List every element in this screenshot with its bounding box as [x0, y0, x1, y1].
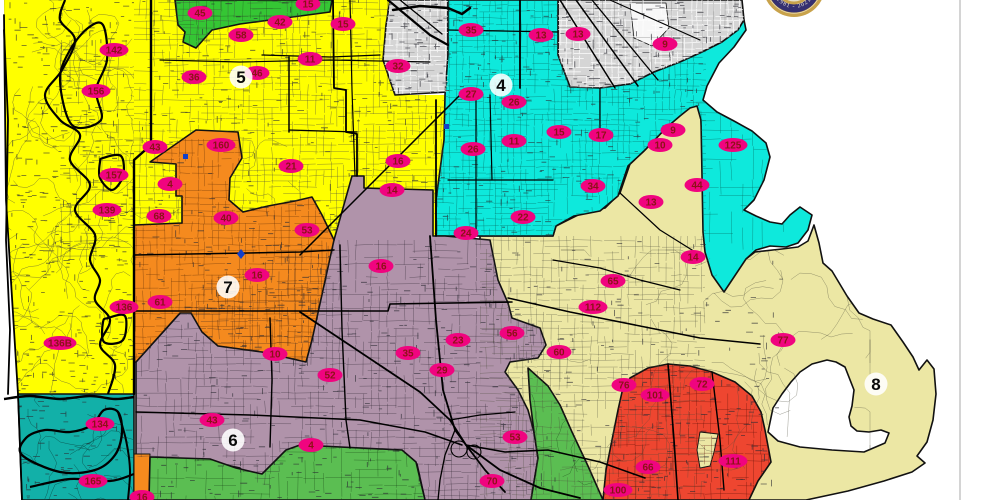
svg-text:6: 6	[228, 431, 237, 450]
svg-text:9: 9	[662, 39, 668, 50]
svg-text:42: 42	[274, 17, 286, 28]
svg-text:16: 16	[375, 261, 387, 272]
svg-text:53: 53	[301, 225, 313, 236]
svg-text:125: 125	[725, 140, 742, 151]
svg-text:16: 16	[251, 270, 263, 281]
svg-text:26: 26	[467, 144, 479, 155]
svg-text:16: 16	[136, 492, 148, 500]
svg-text:17: 17	[595, 130, 607, 141]
svg-text:13: 13	[535, 30, 547, 41]
svg-text:136B: 136B	[48, 338, 72, 349]
svg-text:136: 136	[116, 302, 133, 313]
svg-text:9: 9	[670, 125, 676, 136]
svg-text:29: 29	[436, 365, 448, 376]
svg-text:56: 56	[506, 328, 518, 339]
svg-text:34: 34	[587, 181, 599, 192]
svg-text:13: 13	[645, 197, 657, 208]
svg-text:4: 4	[167, 179, 173, 190]
svg-text:60: 60	[553, 347, 565, 358]
svg-text:68: 68	[153, 211, 165, 222]
svg-text:4: 4	[496, 76, 506, 95]
svg-text:21: 21	[285, 161, 297, 172]
svg-text:72: 72	[696, 379, 708, 390]
svg-text:52: 52	[324, 370, 336, 381]
svg-text:100: 100	[610, 485, 627, 496]
svg-text:27: 27	[465, 89, 477, 100]
svg-text:26: 26	[508, 97, 520, 108]
svg-text:11: 11	[305, 54, 316, 65]
svg-text:16: 16	[392, 156, 404, 167]
svg-text:156: 156	[88, 86, 105, 97]
svg-text:77: 77	[777, 335, 789, 346]
svg-text:14: 14	[687, 252, 699, 263]
svg-text:134: 134	[92, 419, 109, 430]
svg-text:165: 165	[85, 476, 102, 487]
svg-text:15: 15	[553, 127, 565, 138]
svg-text:24: 24	[460, 228, 472, 239]
svg-text:66: 66	[642, 462, 654, 473]
svg-text:15: 15	[337, 19, 349, 30]
svg-text:5: 5	[236, 68, 245, 87]
svg-text:101: 101	[647, 390, 664, 401]
svg-text:76: 76	[618, 380, 630, 391]
svg-text:157: 157	[106, 170, 123, 181]
svg-text:44: 44	[691, 180, 703, 191]
svg-text:22: 22	[517, 212, 529, 223]
svg-text:13: 13	[572, 29, 584, 40]
svg-text:35: 35	[465, 25, 477, 36]
svg-text:65: 65	[607, 276, 619, 287]
svg-text:43: 43	[206, 415, 218, 426]
svg-text:58: 58	[235, 30, 247, 41]
svg-text:46: 46	[251, 68, 263, 79]
svg-text:11: 11	[509, 136, 520, 147]
svg-text:35: 35	[402, 348, 414, 359]
svg-text:111: 111	[725, 456, 741, 467]
svg-text:36: 36	[188, 72, 200, 83]
svg-text:43: 43	[149, 142, 161, 153]
svg-text:4: 4	[308, 440, 314, 451]
svg-text:142: 142	[106, 45, 123, 56]
svg-text:61: 61	[154, 297, 166, 308]
svg-text:23: 23	[452, 335, 464, 346]
svg-text:32: 32	[392, 61, 404, 72]
svg-text:139: 139	[99, 205, 116, 216]
svg-text:15: 15	[302, 0, 314, 10]
svg-text:70: 70	[486, 476, 498, 487]
svg-text:53: 53	[509, 432, 521, 443]
svg-text:8: 8	[871, 375, 880, 394]
svg-text:112: 112	[585, 302, 602, 313]
svg-text:14: 14	[386, 185, 398, 196]
svg-text:40: 40	[220, 213, 232, 224]
svg-text:10: 10	[654, 140, 666, 151]
svg-text:10: 10	[269, 349, 281, 360]
svg-text:160: 160	[213, 140, 230, 151]
svg-text:7: 7	[223, 278, 232, 297]
svg-text:45: 45	[194, 8, 206, 19]
